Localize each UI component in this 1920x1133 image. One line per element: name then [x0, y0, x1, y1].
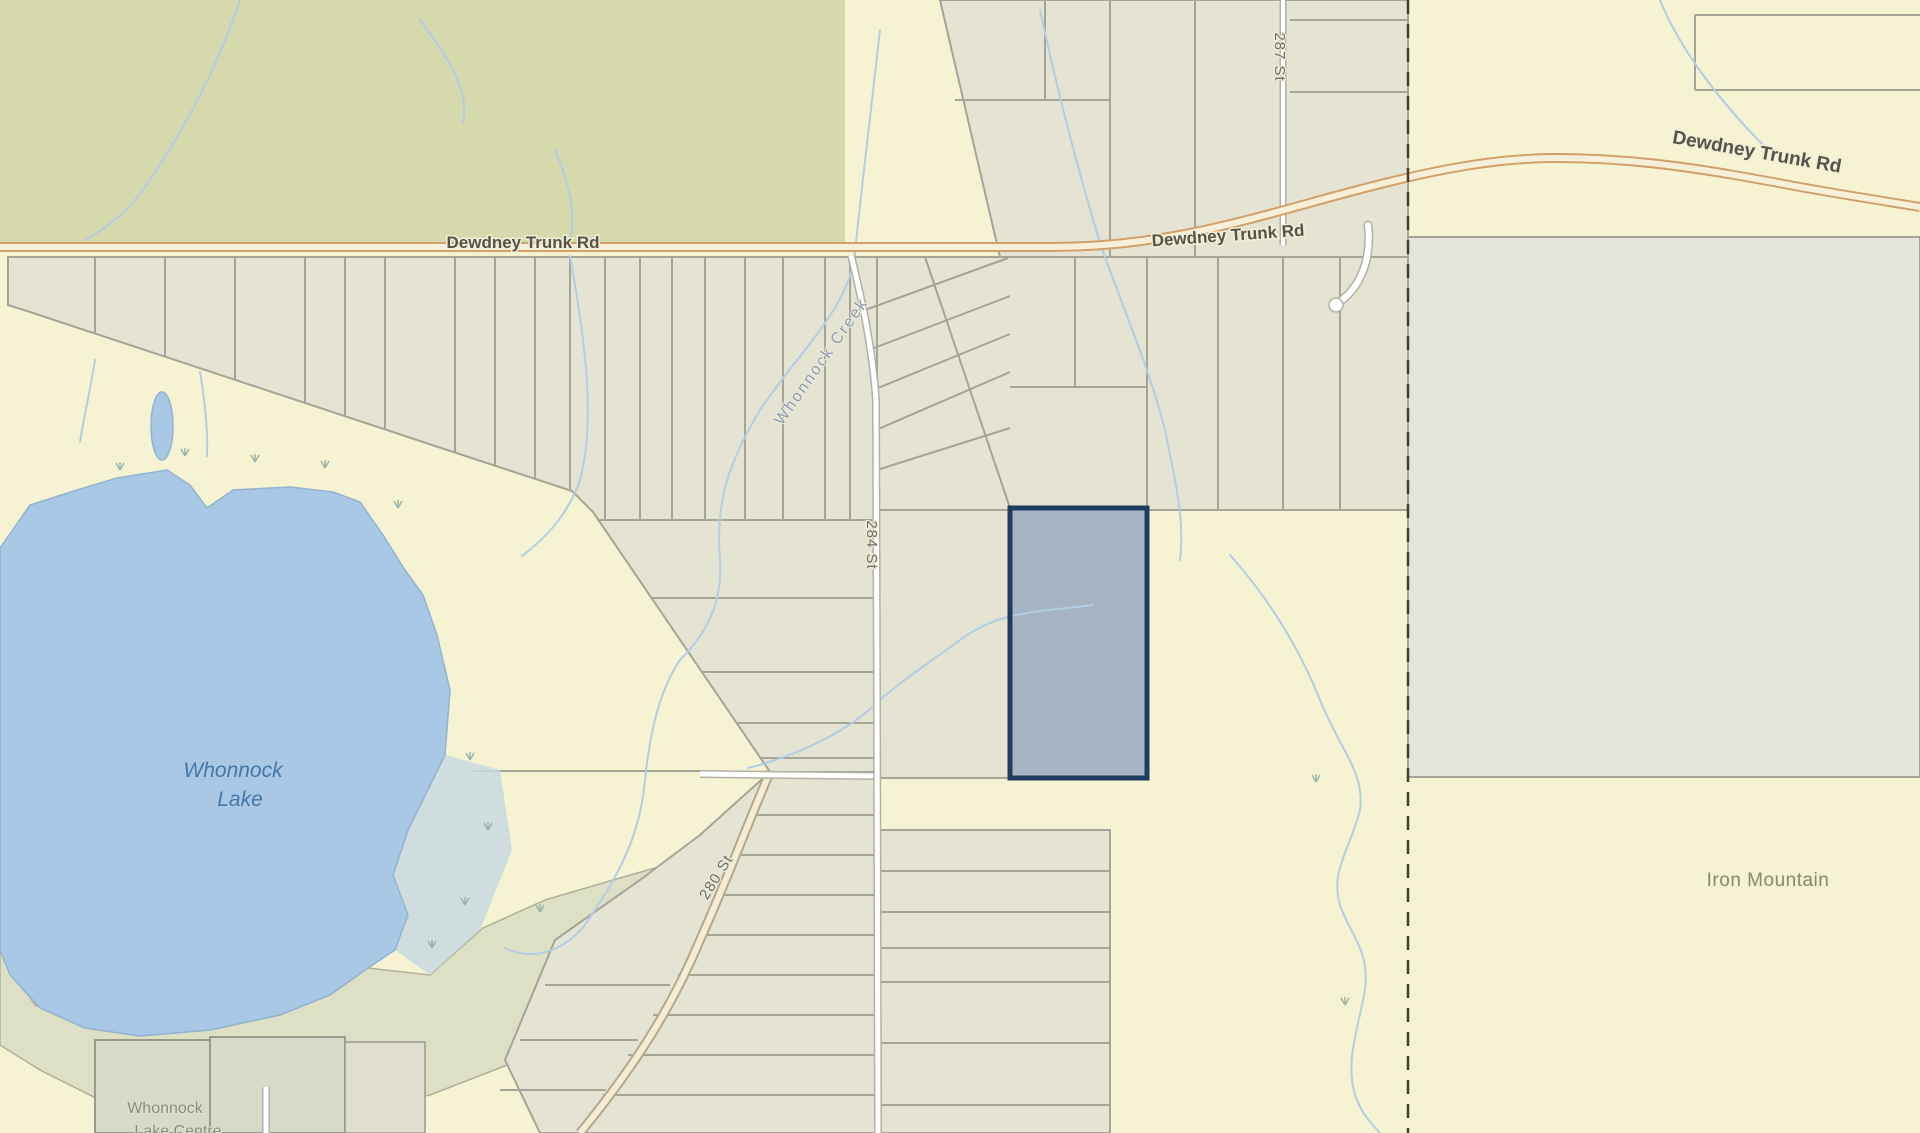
parcel-block-northeast — [877, 257, 1408, 510]
forest-park-area — [0, 0, 845, 243]
parcel-block-north — [940, 0, 1408, 257]
street-label-287: 287 St — [1271, 32, 1288, 81]
lake-centre-parcel-3 — [345, 1042, 425, 1133]
pond — [151, 392, 173, 460]
lake-label-line1: Whonnock — [183, 759, 284, 782]
lake-centre-label-line1: Whonnock — [127, 1100, 204, 1117]
street-label-284: 284 St — [863, 520, 880, 569]
highlighted-parcel-fill[interactable] — [1010, 508, 1147, 778]
lake-centre-label-line2: Lake Centre — [134, 1123, 221, 1133]
whonnock-lake — [0, 470, 450, 1036]
iron-mountain-block — [1408, 237, 1920, 777]
map-viewport[interactable]: Dewdney Trunk Rd Dewdney Trunk Rd Dewdne… — [0, 0, 1920, 1133]
parcel-map-canvas[interactable]: Dewdney Trunk Rd Dewdney Trunk Rd Dewdne… — [0, 0, 1920, 1133]
road-label-dewdney-left: Dewdney Trunk Rd — [446, 233, 599, 252]
iron-mountain-label: Iron Mountain — [1707, 870, 1830, 891]
lake-label-line2: Lake — [217, 788, 263, 811]
lake-centre-parcel-1 — [95, 1040, 210, 1133]
lake-centre-parcel-2 — [210, 1037, 345, 1133]
road-stub-east-west — [700, 774, 877, 776]
